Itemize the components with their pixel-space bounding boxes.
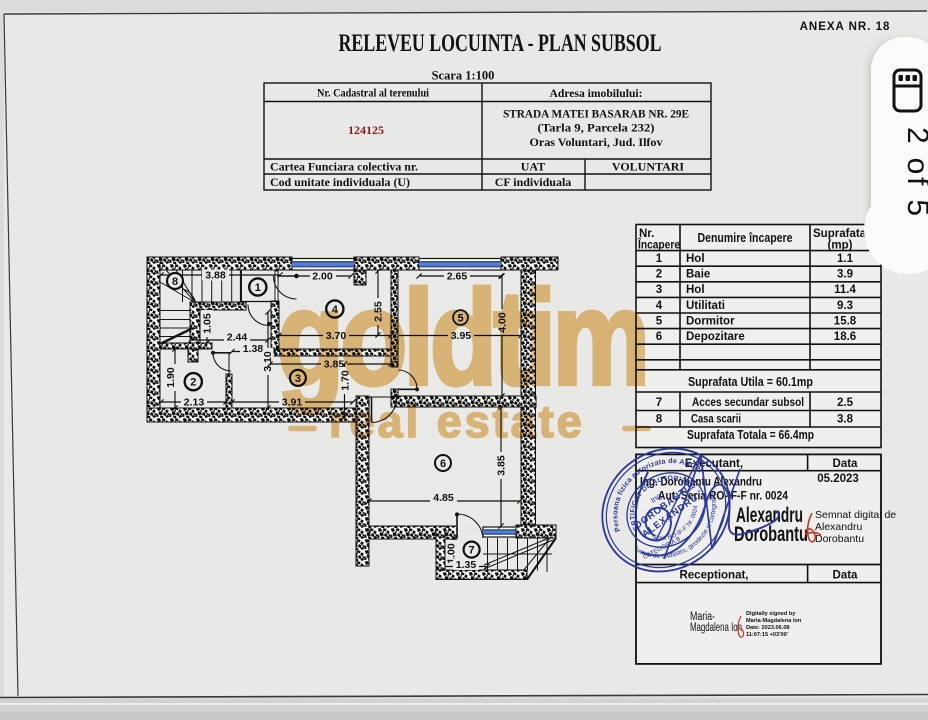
svg-text:18.6: 18.6 — [834, 331, 856, 343]
svg-text:Magdalena Ion: Magdalena Ion — [690, 622, 742, 634]
svg-text:3.88: 3.88 — [205, 270, 226, 282]
svg-text:2.13: 2.13 — [184, 397, 205, 409]
svg-text:real estate: real estate — [329, 396, 585, 447]
svg-text:Baie: Baie — [686, 269, 710, 281]
svg-text:(Tarla 9, Parcela 232): (Tarla 9, Parcela 232) — [538, 121, 655, 135]
svg-text:Dorobantu: Dorobantu — [734, 523, 808, 546]
svg-text:Dormitor: Dormitor — [686, 315, 735, 327]
svg-text:Depozitare: Depozitare — [686, 331, 745, 343]
svg-text:1: 1 — [656, 253, 663, 265]
svg-text:CF individuala: CF individuala — [495, 175, 572, 189]
svg-text:Hol: Hol — [686, 284, 705, 296]
svg-text:Data: Data — [833, 570, 859, 582]
svg-text:Adresa imobilului:: Adresa imobilului: — [550, 86, 643, 100]
svg-text:Utilitati: Utilitati — [686, 300, 725, 312]
svg-text:2: 2 — [190, 377, 196, 389]
svg-text:8: 8 — [172, 276, 178, 288]
svg-text:3.85: 3.85 — [496, 455, 508, 476]
svg-text:2.5: 2.5 — [837, 397, 854, 409]
svg-text:9.3: 9.3 — [837, 300, 853, 312]
svg-text:Receptionat,: Receptionat, — [679, 570, 748, 582]
svg-text:1.35: 1.35 — [456, 559, 477, 571]
svg-text:6: 6 — [440, 458, 446, 470]
svg-text:ANEXA NR. 18: ANEXA NR. 18 — [800, 21, 891, 33]
svg-text:STRADA MATEI BASARAB NR. 29E: STRADA MATEI BASARAB NR. 29E — [503, 107, 689, 121]
svg-text:Maria-Magdalena Ion: Maria-Magdalena Ion — [746, 618, 802, 624]
svg-text:4.85: 4.85 — [433, 492, 454, 504]
svg-text:1.38: 1.38 — [243, 343, 264, 355]
svg-text:2.44: 2.44 — [227, 332, 248, 344]
svg-text:Alexandru: Alexandru — [815, 521, 862, 533]
svg-text:Nr. Cadastral al terenului: Nr. Cadastral al terenului — [317, 86, 430, 100]
svg-text:Casa scarii: Casa scarii — [691, 414, 741, 426]
svg-text:Acces secundar subsol: Acces secundar subsol — [692, 397, 804, 409]
svg-text:3: 3 — [656, 284, 662, 296]
svg-text:Semnat digital de: Semnat digital de — [815, 509, 896, 521]
svg-text:goldtim: goldtim — [277, 263, 646, 413]
svg-text:Hol: Hol — [686, 253, 705, 265]
svg-text:4: 4 — [656, 300, 663, 312]
svg-text:7: 7 — [469, 545, 475, 557]
svg-text:7: 7 — [656, 397, 662, 409]
svg-text:Scara 1:100: Scara 1:100 — [432, 69, 495, 83]
svg-text:8: 8 — [656, 414, 663, 426]
svg-text:Cartea Funciara colectiva nr.: Cartea Funciara colectiva nr. — [270, 160, 418, 174]
svg-text:1.1: 1.1 — [837, 253, 854, 265]
svg-text:5: 5 — [656, 315, 663, 327]
svg-text:VOLUNTARI: VOLUNTARI — [612, 160, 685, 174]
svg-text:Suprafata Totala = 66.4mp: Suprafata Totala = 66.4mp — [687, 428, 814, 442]
svg-text:Nr.: Nr. — [639, 228, 654, 240]
svg-text:05.2023: 05.2023 — [817, 473, 859, 485]
svg-text:Suprafata Utila = 60.1mp: Suprafata Utila = 60.1mp — [688, 375, 813, 389]
svg-text:Date: 2023.06.08: Date: 2023.06.08 — [746, 625, 790, 631]
svg-text:6: 6 — [656, 331, 662, 343]
svg-text:(mp): (mp) — [828, 240, 853, 252]
svg-text:3.8: 3.8 — [837, 414, 854, 426]
svg-text:15.8: 15.8 — [834, 315, 857, 327]
svg-text:1.05: 1.05 — [202, 313, 214, 334]
svg-text:Cod unitate individuala (U): Cod unitate individuala (U) — [270, 175, 410, 189]
svg-text:1.90: 1.90 — [165, 367, 177, 388]
svg-text:11.4: 11.4 — [834, 284, 856, 296]
svg-text:2 of 5: 2 of 5 — [901, 127, 928, 219]
svg-text:Data: Data — [833, 458, 859, 470]
svg-text:Dorobantu: Dorobantu — [815, 533, 864, 545]
svg-text:11:07:15 +03'00': 11:07:15 +03'00' — [746, 632, 789, 638]
svg-text:3.9: 3.9 — [837, 269, 853, 281]
svg-text:2: 2 — [656, 269, 662, 281]
svg-text:1: 1 — [255, 282, 261, 294]
svg-text:124125: 124125 — [348, 123, 384, 137]
svg-text:Încapere: Încapere — [637, 239, 680, 252]
svg-text:Oras Voluntari, Jud. Ilfov: Oras Voluntari, Jud. Ilfov — [530, 135, 663, 149]
svg-text:Digitally signed by: Digitally signed by — [746, 611, 796, 617]
svg-text:RELEVEU LOCUINTA - PLAN SUBSOL: RELEVEU LOCUINTA - PLAN SUBSOL — [339, 30, 662, 57]
svg-text:Denumire încapere: Denumire încapere — [698, 231, 793, 245]
svg-text:UAT: UAT — [521, 160, 545, 174]
